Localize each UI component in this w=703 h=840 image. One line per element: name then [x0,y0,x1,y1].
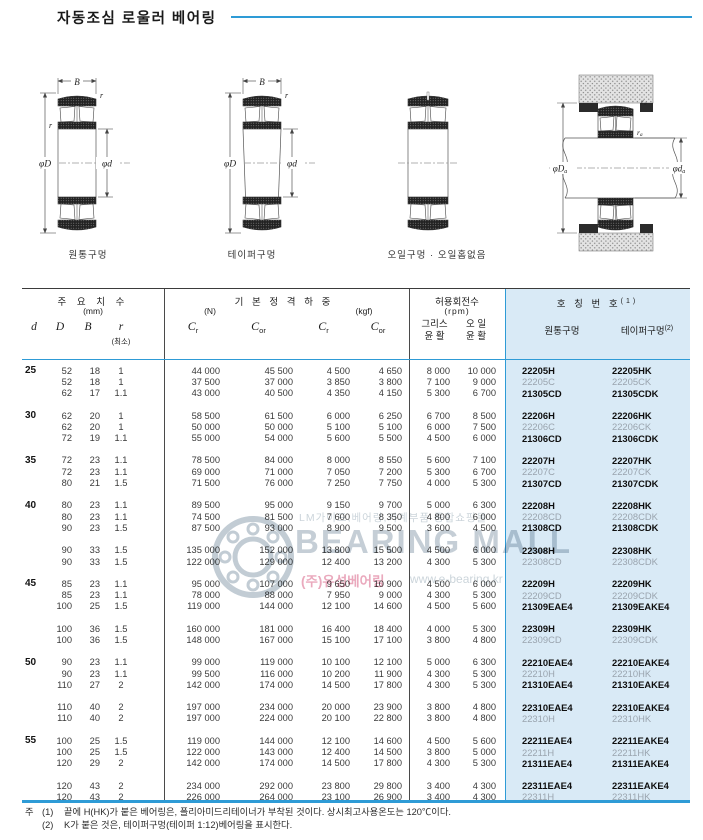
bearing-table: 주 요 치 수 (mm) d D B r (최소) 기 본 정 격 하 중 (N… [22,288,690,803]
cell-designation-cylindrical: 22210EAE4 [522,657,612,668]
cell-grease-rpm: 4 300 [404,557,452,567]
cell-cr-n: 234 000 [164,781,222,791]
cell-D: 90 [46,545,74,555]
cell-B: 33 [74,545,102,555]
table-row: 120292142 000174 00014 50017 8004 3005 3… [22,758,690,769]
cell-r: 1.5 [102,478,140,488]
cell-grease-rpm: 4 300 [404,680,452,690]
cell-r: 2 [102,758,140,768]
cell-r: 1.5 [102,601,140,611]
cell-grease-rpm: 4 500 [404,579,452,589]
cell-r: 1.1 [102,579,140,589]
cell-r: 1.1 [102,455,140,465]
cell-cr-kgf: 4 500 [295,366,352,376]
cell-cr-kgf: 10 200 [295,669,352,679]
cell-oil-rpm: 5 300 [452,669,498,679]
cell-r: 2 [102,713,140,723]
cell-oil-rpm: 8 500 [452,411,498,421]
cell-grease-rpm: 4 500 [404,545,452,555]
cell-designation-tapered: 22209CDK [612,590,690,601]
cell-oil-rpm: 4 500 [452,523,498,533]
cell-grease-rpm: 4 500 [404,601,452,611]
table-row: 255218144 00045 5004 5004 6508 00010 000… [22,365,690,376]
cell-cr-kgf: 6 000 [295,411,352,421]
cell-r: 1.1 [102,590,140,600]
cell-grease-rpm: 6 000 [404,422,452,432]
cell-cor-kgf: 6 250 [352,411,404,421]
cell-cr-kgf: 16 400 [295,624,352,634]
cell-grease-rpm: 4 800 [404,512,452,522]
cell-D: 110 [46,702,74,712]
cell-grease-rpm: 3 800 [404,713,452,723]
cell-D: 90 [46,657,74,667]
cell-cr-kgf: 12 400 [295,747,352,757]
col-header-oil: 오 일윤 활 [454,319,498,342]
table-row: 90231.199 500116 00010 20011 9004 3005 3… [22,668,690,679]
cell-cor-n: 167 000 [222,635,295,645]
table-row: 55100251.5119 000144 00012 10014 6004 50… [22,735,690,746]
footnote-2: (2) K가 붙은 것은, 테이퍼구멍(테이퍼 1:12)베어링을 표시한다. [25,819,451,832]
cell-designation-tapered: 22310HK [612,713,690,724]
cell-designation-cylindrical: 22311EAE4 [522,780,612,791]
dim-label-phiD: φD [224,160,236,170]
cell-cor-kgf: 22 800 [352,713,404,723]
cell-D: 90 [46,557,74,567]
cell-grease-rpm: 7 100 [404,377,452,387]
cell-cor-n: 95 000 [222,500,295,510]
cell-designation-tapered: 21308CDK [612,522,690,533]
cell-cr-kgf: 7 050 [295,467,352,477]
diagram-cylindrical-bore: B r r φD φd [20,62,155,246]
cell-cr-n: 95 000 [164,579,222,589]
cell-B: 23 [74,579,102,589]
cell-B: 23 [74,512,102,522]
cell-cor-kgf: 4 650 [352,366,404,376]
cell-r: 1.5 [102,523,140,533]
cell-cr-kgf: 14 500 [295,758,352,768]
cell-cor-kgf: 18 400 [352,624,404,634]
cell-B: 19 [74,433,102,443]
cell-cor-kgf: 14 600 [352,601,404,611]
cell-designation-cylindrical: 22308CD [522,556,612,567]
dim-label-B: B [259,77,265,87]
cell-r: 1.1 [102,433,140,443]
cell-designation-tapered: 22207HK [612,455,690,466]
cell-grease-rpm: 4 500 [404,736,452,746]
cell-D: 100 [46,601,74,611]
cell-cor-kgf: 13 200 [352,557,404,567]
cell-B: 40 [74,713,102,723]
cell-d: 25 [22,365,46,376]
cell-cr-n: 78 000 [164,590,222,600]
cell-designation-tapered: 21307CDK [612,478,690,489]
caption-cylindrical-bore: 원통구멍 [38,247,138,261]
cell-cr-n: 99 000 [164,657,222,667]
cell-r: 1 [102,366,140,376]
subgroup-gap [22,612,690,623]
cell-grease-rpm: 4 500 [404,433,452,443]
cell-D: 62 [46,411,74,421]
col-header-D: D [46,321,74,333]
header-designation-title: 호 칭 번 호(1) [505,296,690,310]
footnotes: 주 (1) 끝에 H(HK)가 붙은 베어링은, 폴리아미드리테이너가 부착된 … [25,806,451,831]
cell-r: 1 [102,422,140,432]
cell-grease-rpm: 6 700 [404,411,452,421]
cell-cr-n: 55 000 [164,433,222,443]
cell-cor-kgf: 17 800 [352,758,404,768]
cell-cor-kgf: 3 800 [352,377,404,387]
table-row: 100251.5119 000144 00012 10014 6004 5005… [22,601,690,612]
dim-label-phid: φd [287,160,297,170]
cell-cor-n: 61 500 [222,411,295,421]
cell-D: 90 [46,523,74,533]
table-row: 100361.5160 000181 00016 40018 4004 0005… [22,623,690,634]
cell-D: 100 [46,747,74,757]
header-speed-unit: (rpm) [409,306,505,316]
cell-designation-cylindrical: 21308CD [522,522,612,533]
bearing-group-d35: 3572231.178 50084 0008 0008 5505 6007 10… [22,455,690,489]
cell-cor-n: 37 000 [222,377,295,387]
cell-cor-kgf: 12 100 [352,657,404,667]
cell-oil-rpm: 6 300 [452,500,498,510]
cell-cr-n: 135 000 [164,545,222,555]
cell-cr-n: 50 000 [164,422,222,432]
cell-oil-rpm: 4 800 [452,635,498,645]
cell-grease-rpm: 5 000 [404,500,452,510]
col-header-r: r [102,321,140,333]
cell-designation-cylindrical: 21305CD [522,388,612,399]
bearing-group-d50: 5090231.199 000119 00010 10012 1005 0006… [22,657,690,724]
cell-grease-rpm: 5 000 [404,657,452,667]
cell-designation-tapered: 22211HK [612,747,690,758]
cell-B: 36 [74,624,102,634]
cell-oil-rpm: 7 100 [452,455,498,465]
cell-designation-cylindrical: 22208CD [522,511,612,522]
cell-cor-n: 152 000 [222,545,295,555]
cell-r: 1.5 [102,736,140,746]
cell-cr-n: 99 500 [164,669,222,679]
cell-D: 52 [46,366,74,376]
cell-B: 25 [74,747,102,757]
cell-cor-n: 71 000 [222,467,295,477]
cell-cr-n: 148 000 [164,635,222,645]
subgroup-gap [22,769,690,780]
cell-designation-tapered: 22310EAKE4 [612,702,690,713]
cell-r: 1.1 [102,512,140,522]
cell-B: 43 [74,781,102,791]
cell-cr-n: 119 000 [164,601,222,611]
table-bottom-rule [22,800,690,803]
cell-B: 23 [74,523,102,533]
cell-cor-kgf: 8 350 [352,512,404,522]
cell-D: 100 [46,635,74,645]
cell-cr-n: 74 500 [164,512,222,522]
cell-D: 120 [46,781,74,791]
diagram-oil-hole [392,62,462,246]
cell-D: 85 [46,579,74,589]
table-row: 5218137 50037 0003 8503 8007 1009 000222… [22,376,690,387]
cell-cor-n: 144 000 [222,736,295,746]
cell-B: 23 [74,590,102,600]
col-header-d: d [22,321,46,333]
cell-oil-rpm: 5 600 [452,736,498,746]
cell-cor-kgf: 29 800 [352,781,404,791]
cell-d: 30 [22,410,46,421]
bearing-group-d55: 55100251.5119 000144 00012 10014 6004 50… [22,735,690,802]
cell-cr-n: 122 000 [164,557,222,567]
cell-designation-cylindrical: 21307CD [522,478,612,489]
cell-cor-n: 224 000 [222,713,295,723]
cell-cor-n: 234 000 [222,702,295,712]
table-row: 110402197 000224 00020 10022 8003 8004 8… [22,713,690,724]
table-row: 72191.155 00054 0005 6005 5004 5006 0002… [22,432,690,443]
cell-d: 45 [22,578,46,589]
table-row: 80231.174 50081 5007 6008 3504 8006 0002… [22,511,690,522]
cell-D: 52 [46,377,74,387]
cell-cr-n: 197 000 [164,713,222,723]
cell-cr-n: 37 500 [164,377,222,387]
cell-designation-tapered: 21309EAKE4 [612,601,690,612]
cell-designation-cylindrical: 22309CD [522,634,612,645]
cell-cr-kgf: 7 600 [295,512,352,522]
col-header-cor-kgf: Cor [352,319,404,335]
cell-cor-kgf: 15 500 [352,545,404,555]
cell-grease-rpm: 3 800 [404,747,452,757]
title-rule [231,16,692,18]
cell-cor-n: 144 000 [222,601,295,611]
cell-cr-kgf: 12 400 [295,557,352,567]
cell-B: 23 [74,500,102,510]
cell-cr-kgf: 5 600 [295,433,352,443]
cell-oil-rpm: 7 500 [452,422,498,432]
cell-designation-cylindrical: 22309H [522,623,612,634]
cell-cr-n: 89 500 [164,500,222,510]
dim-label-r-left: r [49,121,53,130]
cell-d: 50 [22,657,46,668]
cell-cr-kgf: 7 950 [295,590,352,600]
cell-designation-cylindrical: 21309EAE4 [522,601,612,612]
cell-cr-n: 142 000 [164,758,222,768]
cell-cor-n: 116 000 [222,669,295,679]
cell-D: 80 [46,512,74,522]
bearing-group-d25: 255218144 00045 5004 5004 6508 00010 000… [22,365,690,399]
cell-designation-cylindrical: 22211EAE4 [522,735,612,746]
cell-r: 2 [102,680,140,690]
cell-oil-rpm: 5 600 [452,601,498,611]
cell-designation-tapered: 22207CK [612,466,690,477]
cell-cr-n: 78 500 [164,455,222,465]
cell-oil-rpm: 5 300 [452,478,498,488]
cell-cr-n: 119 000 [164,736,222,746]
table-row: 90331.5135 000152 00013 80015 5004 5006 … [22,545,690,556]
cell-grease-rpm: 3 800 [404,635,452,645]
cell-grease-rpm: 3 800 [404,702,452,712]
cell-designation-tapered: 22308CDK [612,556,690,567]
cell-oil-rpm: 4 800 [452,713,498,723]
dim-label-phiD: φD [39,160,51,170]
cell-oil-rpm: 5 300 [452,557,498,567]
cell-grease-rpm: 3 400 [404,781,452,791]
cell-B: 17 [74,388,102,398]
table-rows: 255218144 00045 5004 5004 6508 00010 000… [22,365,690,803]
cell-cor-kgf: 11 900 [352,669,404,679]
table-row: 6220150 00050 0005 1005 1006 0007 500222… [22,421,690,432]
cell-oil-rpm: 9 000 [452,377,498,387]
header-dimensions-unit: (mm) [48,306,138,316]
cell-B: 27 [74,680,102,690]
cell-cor-kgf: 14 600 [352,736,404,746]
cell-cor-kgf: 17 800 [352,680,404,690]
cell-r: 1.5 [102,545,140,555]
col-header-cylindrical-bore: 원통구멍 [517,323,607,337]
cell-designation-cylindrical: 22205C [522,376,612,387]
diagram-tapered-bore: B r φD φd [205,62,340,246]
cell-oil-rpm: 4 800 [452,702,498,712]
cell-cr-kgf: 7 250 [295,478,352,488]
cell-grease-rpm: 8 000 [404,366,452,376]
cell-cr-n: 142 000 [164,680,222,690]
cell-designation-tapered: 21306CDK [612,433,690,444]
dim-label-r-top: r [100,91,104,100]
cell-cor-n: 50 000 [222,422,295,432]
cell-cr-kgf: 20 000 [295,702,352,712]
dim-label-phid: φd [102,160,112,170]
cell-r: 2 [102,781,140,791]
cell-D: 72 [46,467,74,477]
cell-cor-kgf: 5 100 [352,422,404,432]
table-row: 85231.178 00088 0007 9509 0004 3005 3002… [22,589,690,600]
cell-designation-cylindrical: 21310EAE4 [522,679,612,690]
cell-designation-tapered: 22206HK [612,410,690,421]
cell-d: 40 [22,500,46,511]
cell-D: 100 [46,736,74,746]
cell-designation-tapered: 22208CDK [612,511,690,522]
cell-cr-kgf: 15 100 [295,635,352,645]
cell-cor-kgf: 17 100 [352,635,404,645]
cell-oil-rpm: 6 700 [452,388,498,398]
bearing-group-d40: 4080231.189 50095 0009 1509 7005 0006 30… [22,500,690,567]
cell-cr-kgf: 23 800 [295,781,352,791]
cell-designation-cylindrical: 22310H [522,713,612,724]
cell-oil-rpm: 6 000 [452,545,498,555]
cell-designation-cylindrical: 22211H [522,747,612,758]
cell-B: 18 [74,377,102,387]
cell-cr-kgf: 3 850 [295,377,352,387]
cell-cr-kgf: 20 100 [295,713,352,723]
table-row: 4080231.189 50095 0009 1509 7005 0006 30… [22,500,690,511]
col-header-cr-n: Cr [164,319,222,335]
cell-cr-kgf: 9 150 [295,500,352,510]
table-row: 120432234 000292 00023 80029 8003 4004 3… [22,780,690,791]
cell-r: 1.1 [102,467,140,477]
cell-designation-tapered: 22309CDK [612,634,690,645]
cell-designation-tapered: 22205HK [612,365,690,376]
table-header: 주 요 치 수 (mm) d D B r (최소) 기 본 정 격 하 중 (N… [22,289,690,360]
cell-d: 55 [22,735,46,746]
cell-cor-kgf: 9 000 [352,590,404,600]
table-row: 62171.143 00040 5004 3504 1505 3006 7002… [22,388,690,399]
subgroup-gap [22,534,690,545]
cell-B: 36 [74,635,102,645]
cell-oil-rpm: 10 000 [452,366,498,376]
cell-designation-cylindrical: 22206C [522,421,612,432]
cell-cor-n: 84 000 [222,455,295,465]
cell-cor-n: 88 000 [222,590,295,600]
cell-cor-n: 174 000 [222,758,295,768]
cell-designation-tapered: 22210EAKE4 [612,657,690,668]
catalog-page: 자동조심 로울러 베어링 B r r φD φd [0,0,703,840]
cell-cor-n: 40 500 [222,388,295,398]
cell-B: 20 [74,411,102,421]
cell-r: 1.5 [102,624,140,634]
cell-designation-tapered: 21305CDK [612,388,690,399]
cell-grease-rpm: 4 300 [404,590,452,600]
cell-B: 23 [74,455,102,465]
cell-r: 1.1 [102,669,140,679]
cell-r: 2 [102,702,140,712]
cell-oil-rpm: 5 000 [452,747,498,757]
cell-cor-kgf: 9 500 [352,523,404,533]
dim-label-B: B [74,77,80,87]
cell-D: 62 [46,388,74,398]
cell-B: 20 [74,422,102,432]
header-load-unit-n: (N) [180,306,240,316]
cell-cor-n: 54 000 [222,433,295,443]
cell-designation-tapered: 22311EAKE4 [612,780,690,791]
cell-r: 1.5 [102,747,140,757]
cell-cor-kgf: 9 700 [352,500,404,510]
cell-designation-cylindrical: 22209CD [522,590,612,601]
cell-cor-kgf: 5 500 [352,433,404,443]
cell-B: 23 [74,657,102,667]
col-header-tapered-bore: 테이퍼구멍(2) [604,323,690,337]
table-row: 3572231.178 50084 0008 0008 5505 6007 10… [22,455,690,466]
cell-grease-rpm: 5 300 [404,467,452,477]
cell-D: 80 [46,478,74,488]
cell-cr-kgf: 8 900 [295,523,352,533]
cell-cor-kgf: 14 500 [352,747,404,757]
cell-cor-n: 129 000 [222,557,295,567]
cell-cr-n: 197 000 [164,702,222,712]
cell-cr-kgf: 12 100 [295,601,352,611]
footnote-1: 주 (1) 끝에 H(HK)가 붙은 베어링은, 폴리아미드리테이너가 부착된 … [25,806,451,819]
cell-D: 110 [46,680,74,690]
cell-designation-tapered: 22308HK [612,545,690,556]
cell-designation-cylindrical: 22208H [522,500,612,511]
cell-cor-kgf: 4 150 [352,388,404,398]
cell-B: 18 [74,366,102,376]
cell-cor-n: 143 000 [222,747,295,757]
cell-cor-n: 93 000 [222,523,295,533]
cell-designation-cylindrical: 22210H [522,668,612,679]
cell-cr-kgf: 10 100 [295,657,352,667]
cell-D: 80 [46,500,74,510]
footnote-prefix: 주 [25,806,42,819]
subgroup-gap [22,691,690,702]
cell-cor-n: 174 000 [222,680,295,690]
cell-designation-tapered: 21310EAKE4 [612,679,690,690]
cell-oil-rpm: 4 300 [452,781,498,791]
cell-r: 1.1 [102,657,140,667]
cell-cor-kgf: 23 900 [352,702,404,712]
cell-designation-tapered: 22210HK [612,668,690,679]
cell-D: 85 [46,590,74,600]
diagram-mounted: φDa φda ra ra [535,62,703,252]
cell-r: 1.5 [102,635,140,645]
cell-grease-rpm: 5 300 [404,388,452,398]
cell-designation-cylindrical: 22310EAE4 [522,702,612,713]
cell-designation-cylindrical: 21311EAE4 [522,758,612,769]
